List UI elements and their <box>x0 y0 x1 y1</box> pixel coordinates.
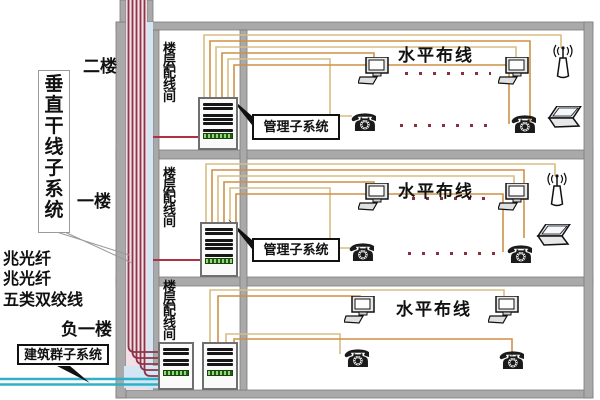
desktop-computer-icon <box>344 296 374 323</box>
campus-subsystem-label: 建筑群子系统 <box>17 344 109 365</box>
floor-label-1f: 一楼 <box>77 187 111 212</box>
structured-cabling-diagram: ☎ <box>0 0 600 400</box>
desktop-computer-icon <box>358 183 388 210</box>
telephone-icon <box>350 109 380 137</box>
desktop-computer-icon <box>358 57 388 84</box>
vertical-backbone-subsystem-label: 垂直干线子系统 <box>38 70 70 233</box>
desktop-computer-icon <box>488 296 518 323</box>
equipment-rack-basement-left <box>158 342 194 390</box>
ellipsis-dots <box>400 124 492 127</box>
equipment-rack-floor2 <box>198 97 238 150</box>
wireless-ap-icon <box>548 173 566 206</box>
floor-label-b1: 负一楼 <box>61 315 112 340</box>
laptop-icon <box>538 224 570 245</box>
horizontal-cabling-label-1f: 水平布线 <box>398 177 474 202</box>
ellipsis-dots <box>405 72 491 75</box>
horizontal-cabling-label-b1: 水平布线 <box>396 295 472 320</box>
wireless-ap-icon <box>554 45 572 78</box>
equipment-rack-floor1 <box>200 222 238 277</box>
telephone-icon <box>348 239 378 267</box>
floor-closet-label-2f: 楼层配线间 <box>161 44 178 104</box>
telephone-icon <box>498 347 528 375</box>
floor-closet-label-b1: 楼层配线间 <box>161 282 178 342</box>
laptop-icon <box>549 106 581 127</box>
telephone-icon <box>510 111 540 139</box>
ellipsis-dots <box>408 252 500 255</box>
floor-closet-label-1f: 楼层配线间 <box>161 169 178 229</box>
management-subsystem-label-2f: 管理子系统 <box>252 114 340 140</box>
utp-label: 五类双绞线 <box>3 286 83 310</box>
management-subsystem-label-1f: 管理子系统 <box>252 238 340 262</box>
telephone-icon <box>506 241 536 269</box>
horizontal-cabling-label-2f: 水平布线 <box>398 41 474 66</box>
desktop-computer-icon <box>498 57 528 84</box>
equipment-rack-basement-right <box>202 342 238 390</box>
telephone-icon <box>343 345 373 373</box>
floor-label-2f: 二楼 <box>83 52 117 77</box>
